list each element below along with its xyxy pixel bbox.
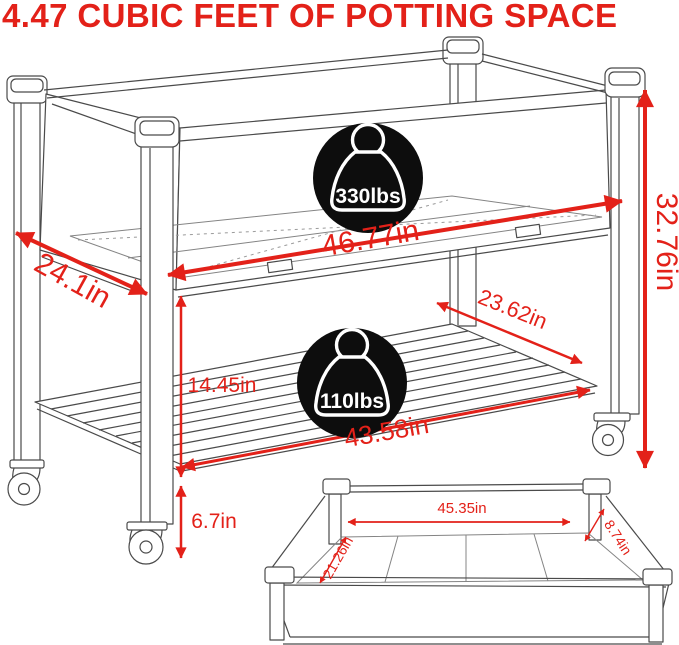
- inner-width-label: 21.26in: [319, 534, 356, 582]
- upper-capacity-label: 330lbs: [335, 185, 400, 208]
- bed-to-shelf-label: 14.45in: [188, 374, 257, 397]
- ground-clearance-label: 6.7in: [191, 510, 237, 533]
- caster-wheel-front-right: [593, 413, 631, 456]
- inset-front-left-post: [270, 583, 284, 640]
- front-left-leg: [135, 117, 179, 524]
- inset-back-right-post-cap: [583, 479, 610, 494]
- diagram-svg: 330lbs 110lbs 46.77in 24.1in 32.76in 23.…: [0, 0, 679, 645]
- product-dimension-diagram: 4.47 CUBIC FEET OF POTTING SPACE: [0, 0, 679, 645]
- caster-wheel-front-left: [127, 522, 167, 564]
- inset-tray-drawing: 45.35in 21.26in 8.74in: [265, 479, 672, 644]
- inner-length-label: 45.35in: [437, 500, 486, 517]
- inset-back-left-post-cap: [323, 479, 350, 494]
- inset-front-right-post: [649, 585, 663, 642]
- lower-capacity-label: 110lbs: [320, 390, 384, 413]
- shelf-depth-label: 23.62in: [475, 284, 551, 334]
- inset-back-left-post: [329, 494, 341, 544]
- inset-front-left-post-cap: [265, 567, 294, 583]
- front-right-leg: [605, 68, 645, 414]
- overall-height-label: 32.76in: [650, 193, 679, 291]
- inset-front-right-post-cap: [643, 569, 672, 585]
- caster-wheel-back-left: [8, 460, 44, 505]
- inner-depth-label: 8.74in: [601, 517, 635, 558]
